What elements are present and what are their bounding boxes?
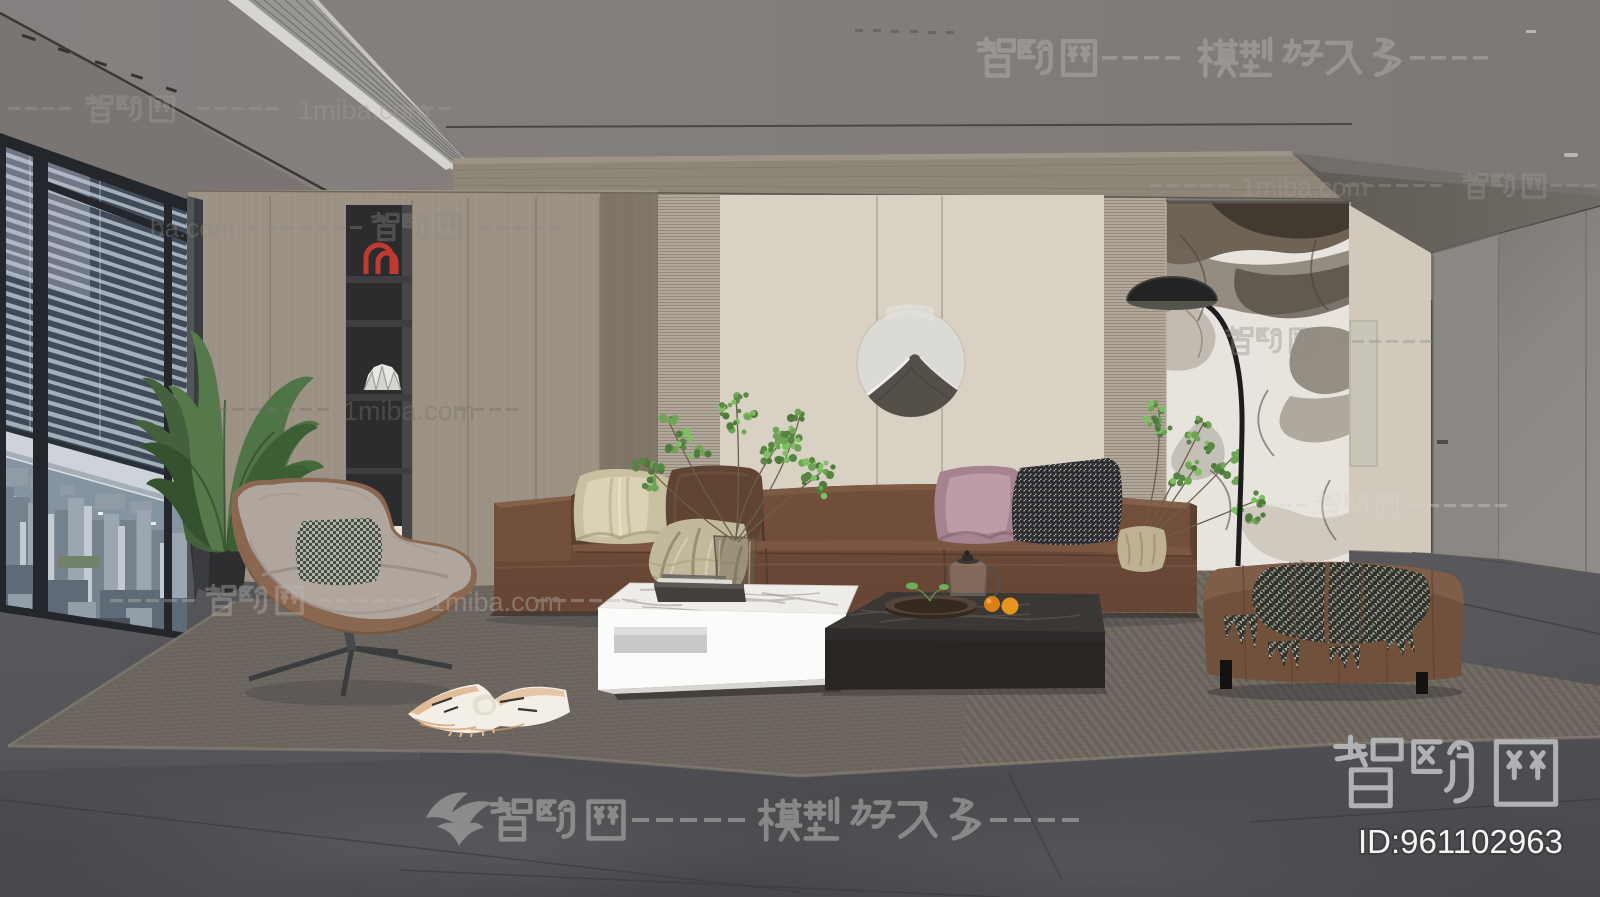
svg-text:ID:961102963: ID:961102963 — [1358, 823, 1563, 860]
svg-text:1miba.com: 1miba.com — [1241, 172, 1368, 202]
svg-text:1miba.com: 1miba.com — [430, 587, 562, 617]
svg-text:1miba.com: 1miba.com — [1447, 328, 1574, 358]
svg-text:1miba.com: 1miba.com — [298, 95, 430, 125]
svg-text:ba.com: ba.com — [150, 213, 235, 243]
svg-text:1miba.com: 1miba.com — [343, 396, 475, 426]
